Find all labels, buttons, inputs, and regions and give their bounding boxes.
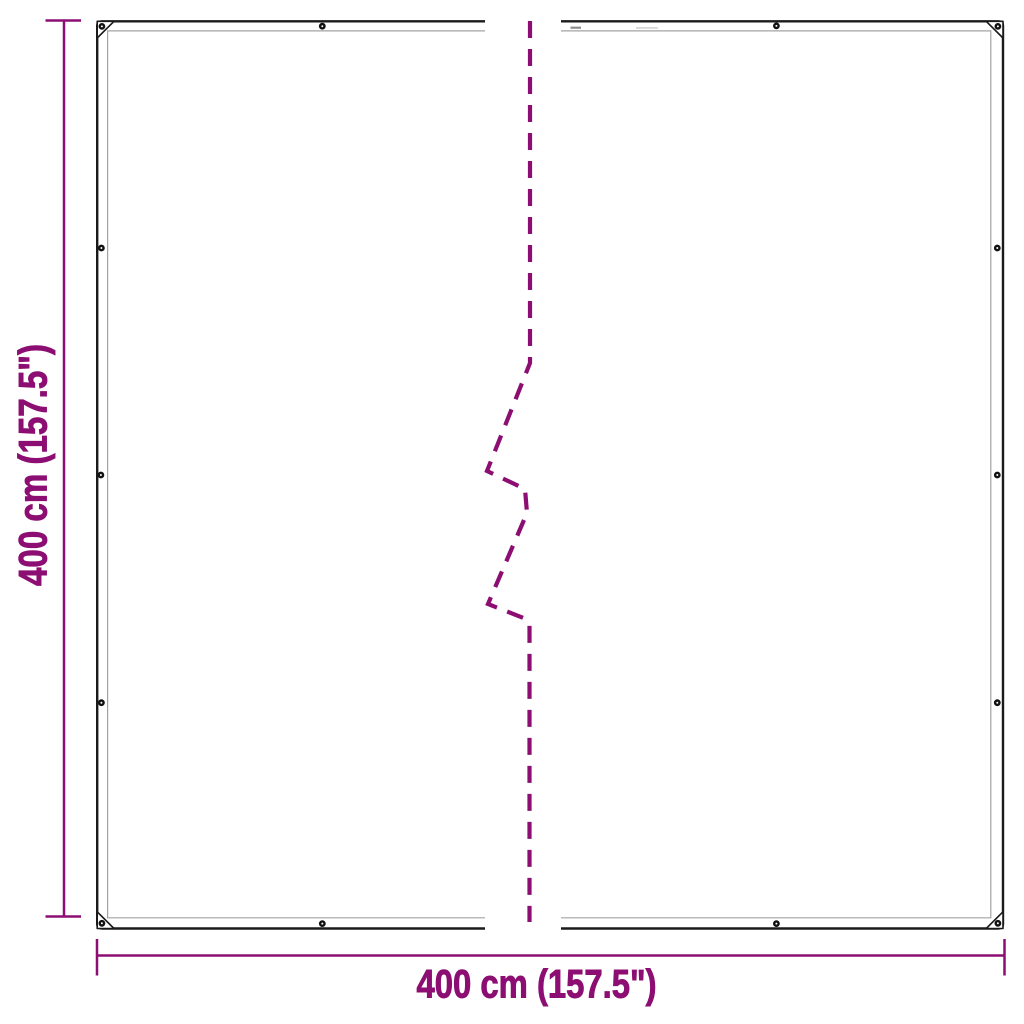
svg-text:400 cm (157.5"): 400 cm (157.5") <box>417 963 657 1007</box>
svg-text:400 cm (157.5"): 400 cm (157.5") <box>12 344 56 586</box>
